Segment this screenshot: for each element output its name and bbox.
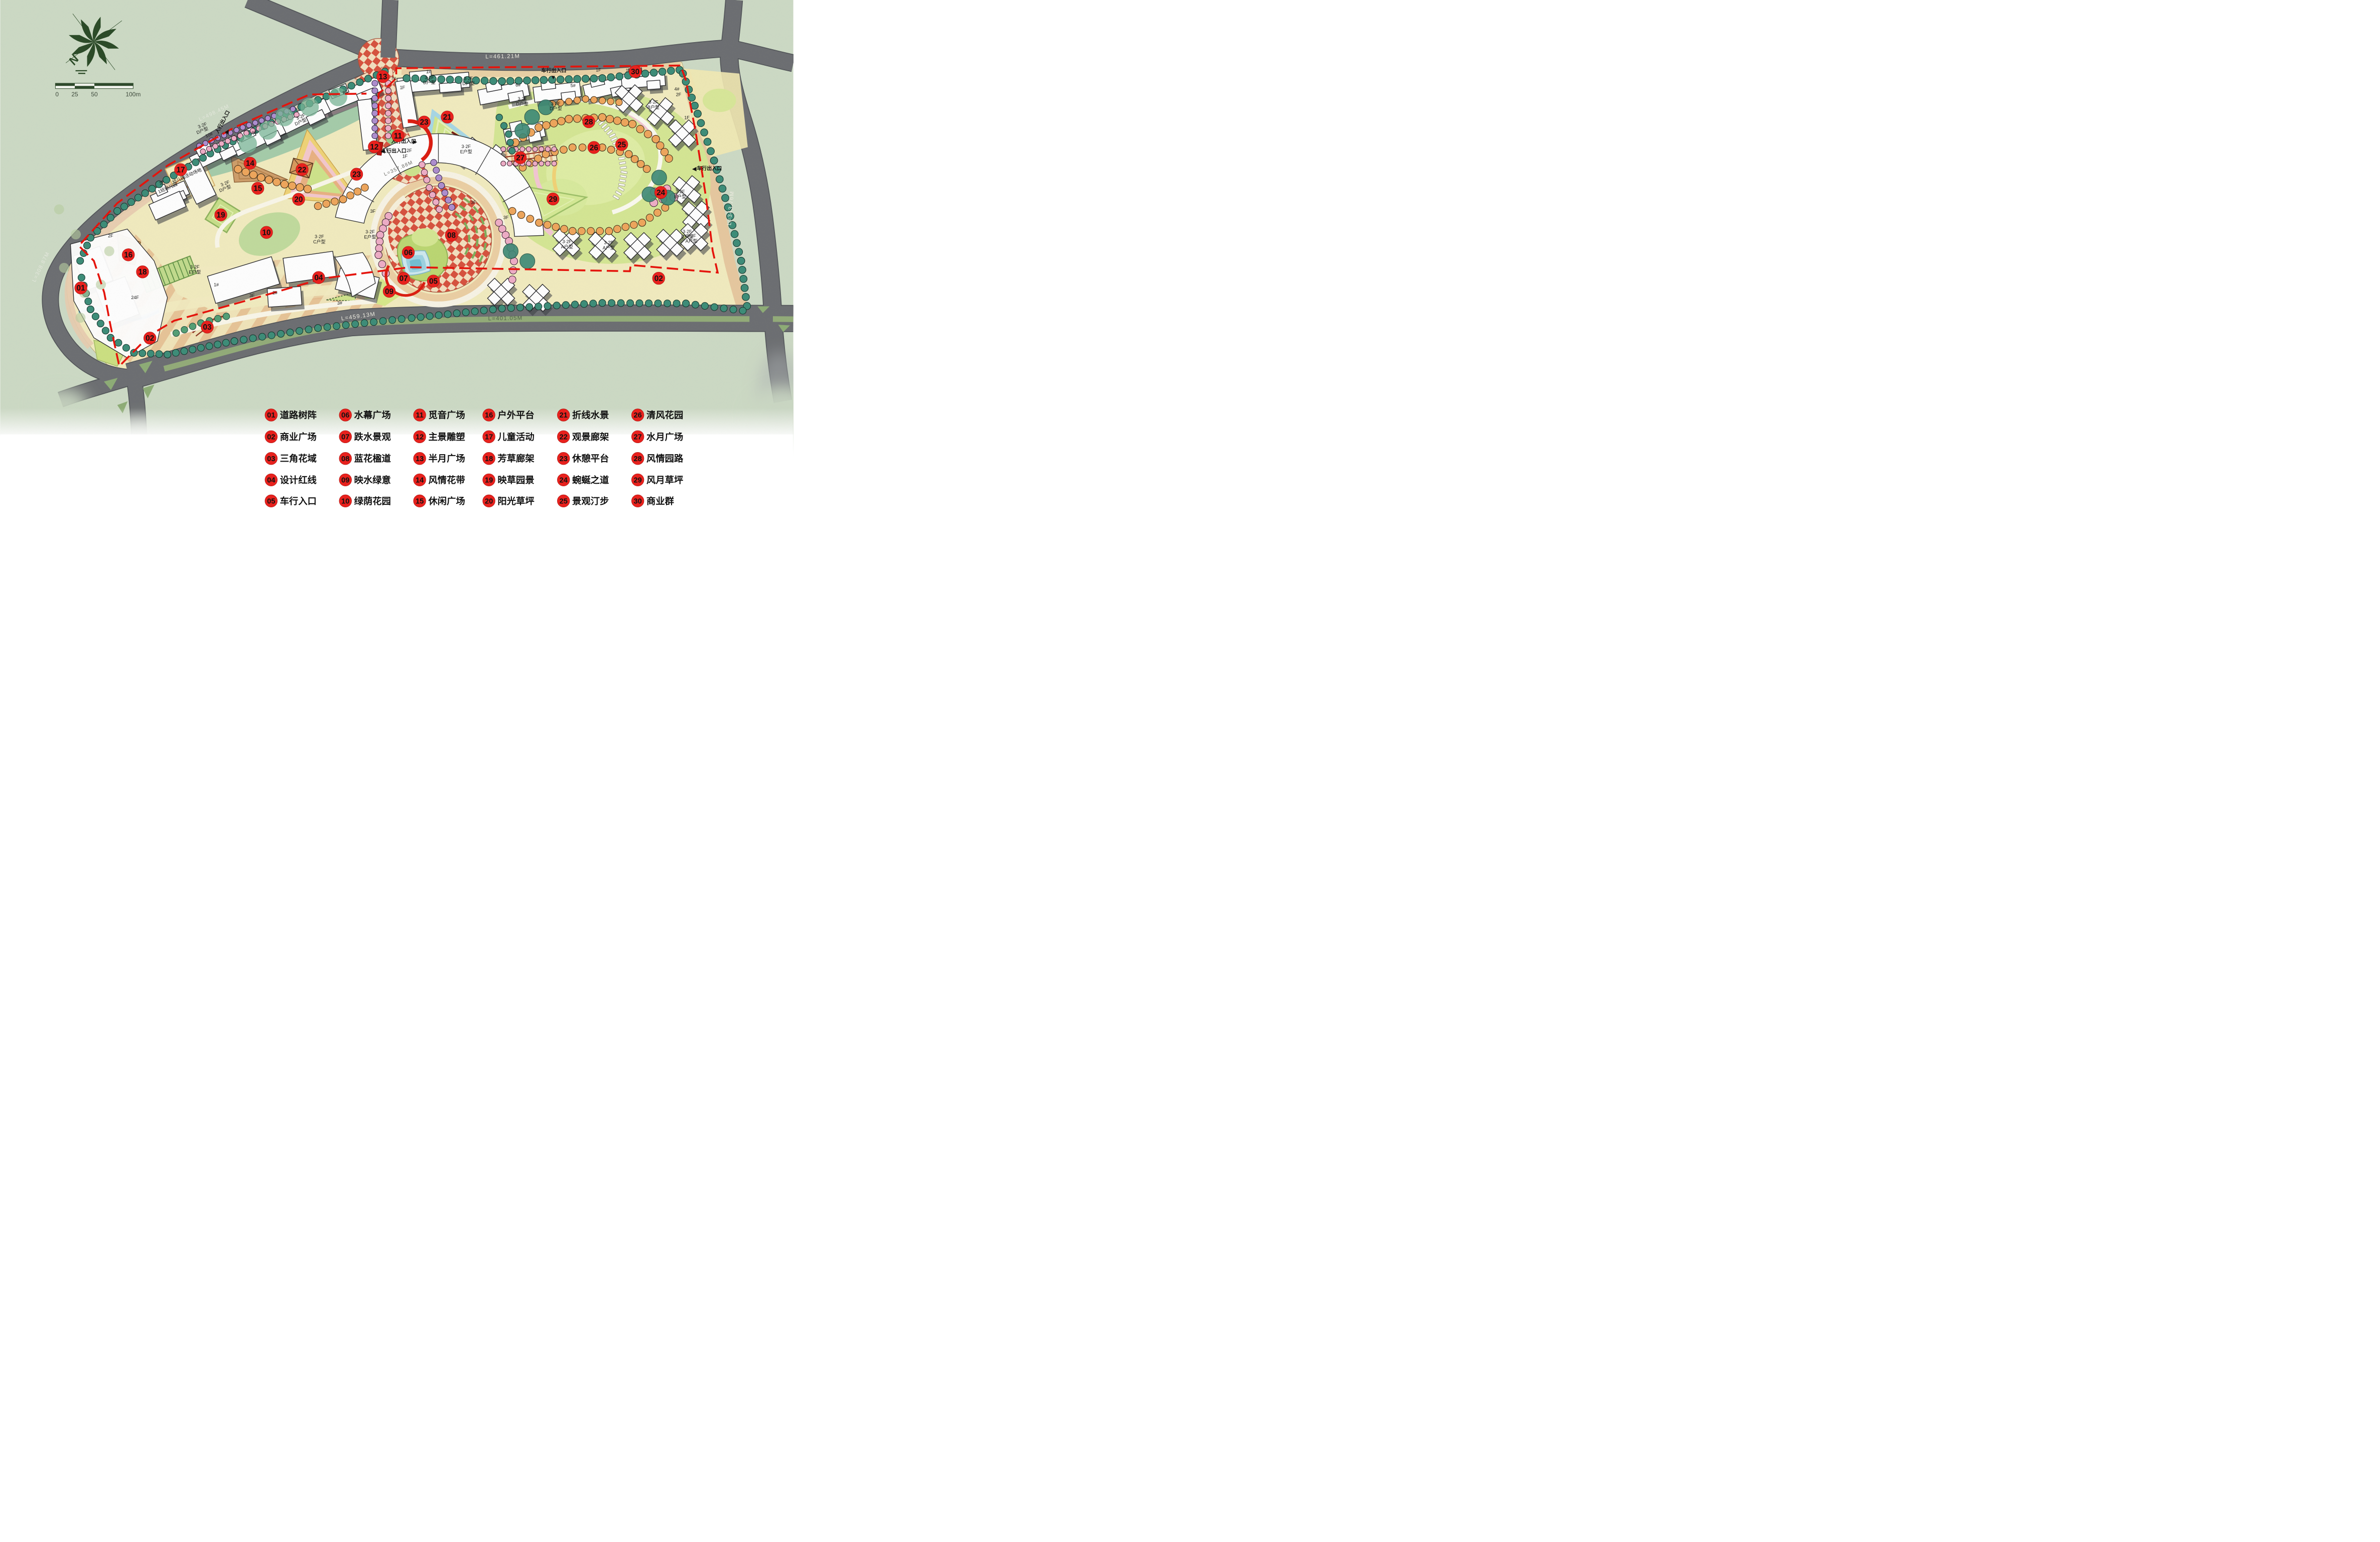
- feature-marker-19: 19: [215, 209, 227, 221]
- legend-item-label: 风情园路: [646, 453, 684, 464]
- building-label: 3·2F: [687, 233, 696, 238]
- legend-item-26: 26清风花园: [631, 409, 683, 422]
- paper-grain: [0, 0, 793, 436]
- legend-item-label: 折线水景: [572, 409, 609, 420]
- legend-item-02: 02商业广场: [265, 431, 317, 443]
- legend-item-09: 09映水绿意: [339, 474, 391, 486]
- feature-marker-22: 22: [296, 164, 309, 176]
- legend-item-number: 26: [634, 411, 642, 419]
- legend-item-17: 17儿童活动: [483, 431, 535, 443]
- feature-marker-26: 26: [588, 142, 600, 154]
- feature-marker-15: 15: [251, 182, 264, 195]
- legend-item-label: 儿童活动: [497, 432, 534, 442]
- legend-item-label: 阳光草坪: [497, 496, 534, 506]
- feature-marker-number: 25: [617, 141, 626, 149]
- legend-item-label: 观景廊架: [572, 432, 609, 442]
- feature-marker-16: 16: [122, 249, 135, 261]
- building-label: 1F: [426, 69, 432, 74]
- building-label: E户型: [189, 269, 201, 274]
- scale-tick-0: 0: [55, 91, 59, 98]
- legend-item-16: 16户外平台: [483, 409, 535, 422]
- legend-item-label: 跌水景观: [354, 432, 391, 442]
- building-label: 3·2F: [604, 240, 613, 245]
- building-label: 3·2F: [649, 100, 658, 105]
- legend-item-14: 14风情花带: [414, 474, 465, 486]
- feature-marker-number: 30: [631, 68, 639, 76]
- building-label: C户型: [313, 239, 325, 244]
- feature-marker-30: 30: [629, 65, 641, 78]
- entrance-arrow-icon: ▼: [551, 75, 556, 81]
- building-label: E户型: [460, 149, 472, 155]
- legend-item-28: 28风情园路: [631, 452, 684, 465]
- legend-item-12: 12主景雕塑: [414, 431, 465, 443]
- legend-item-label: 户外平台: [497, 409, 534, 420]
- legend-item-05: 05车行入口: [265, 495, 317, 507]
- legend-item-20: 20阳光草坪: [483, 495, 535, 507]
- legend-item-06: 06水幕广场: [339, 409, 391, 422]
- feature-marker-21: 21: [441, 111, 454, 123]
- legend-item-15: 15休闲广场: [414, 495, 465, 507]
- feature-marker-03: 03: [201, 321, 214, 333]
- feature-marker-number: 03: [203, 323, 211, 332]
- entrance-arrow-icon: ◀: [692, 166, 697, 172]
- legend-item-27: 27水月广场: [631, 431, 683, 443]
- building-label: 2#: [273, 290, 278, 295]
- feature-marker-number: 23: [420, 118, 429, 127]
- feature-marker-06: 06: [402, 246, 415, 259]
- legend-item-number: 12: [416, 434, 424, 442]
- legend-item-number: 03: [267, 455, 275, 463]
- legend-item-24: 24蜿蜒之道: [557, 474, 609, 486]
- building-label: B户型: [647, 104, 659, 110]
- feature-marker-number: 23: [352, 171, 361, 179]
- legend-item-label: 清风花园: [646, 409, 683, 420]
- legend-item-07: 07跌水景观: [339, 431, 391, 443]
- legend-item-10: 10绿荫花园: [339, 495, 391, 507]
- legend-item-number: 23: [560, 455, 568, 463]
- building-label: 2F: [108, 233, 113, 238]
- feature-marker-number: 09: [385, 288, 393, 296]
- legend-item-22: 22观景廊架: [557, 431, 609, 443]
- building-label: A户型: [561, 244, 573, 249]
- building-label: 3·2F: [518, 96, 527, 101]
- legend-item-03: 03三角花域: [265, 452, 317, 465]
- building-label: 3·2F: [315, 234, 324, 239]
- building-label: 1F: [596, 67, 601, 72]
- legend-item-number: 01: [267, 411, 275, 419]
- legend-item-label: 三角花域: [280, 453, 317, 464]
- feature-marker-05: 05: [427, 275, 440, 288]
- feature-marker-07: 07: [398, 272, 410, 285]
- legend-item-number: 15: [416, 497, 424, 505]
- feature-marker-number: 29: [549, 195, 557, 204]
- legend-item-number: 14: [416, 476, 424, 484]
- building-label: 3·2F: [551, 101, 561, 106]
- legend-item-23: 23休憩平台: [557, 452, 609, 465]
- legend-item-label: 映草园景: [497, 475, 534, 485]
- legend-item-number: 17: [485, 434, 493, 442]
- building-label: 3·2F: [365, 229, 375, 234]
- feature-marker-17: 17: [175, 164, 187, 176]
- legend-item-number: 08: [341, 455, 349, 463]
- feature-marker-27: 27: [514, 152, 526, 164]
- building-label: 3F: [370, 209, 376, 214]
- feature-marker-number: 10: [262, 229, 271, 237]
- feature-marker-number: 19: [216, 211, 225, 220]
- feature-marker-09: 09: [383, 285, 395, 298]
- legend-item-label: 休闲广场: [428, 496, 465, 506]
- building-label: 5#: [571, 83, 576, 88]
- scale-tick-50: 50: [91, 91, 98, 98]
- legend-item-number: 18: [485, 455, 493, 463]
- feature-marker-25: 25: [615, 138, 628, 151]
- legend-item-08: 08蓝花楹道: [339, 452, 391, 465]
- building-label: 7#: [391, 76, 396, 81]
- road-length-label: L=461.21M: [485, 53, 520, 60]
- masterplan-svg: N 0 25 50 100m L=461.21ML=498.45ML=308.8…: [0, 0, 794, 514]
- feature-marker-number: 11: [394, 132, 403, 141]
- legend-item-number: 27: [634, 434, 642, 442]
- legend-item-label: 商业群: [646, 496, 674, 506]
- feature-marker-number: 07: [400, 274, 408, 283]
- feature-marker-number: 21: [443, 113, 452, 122]
- building-label: 3·2F: [190, 264, 200, 269]
- feature-marker-08: 08: [445, 229, 458, 242]
- building-label: 2F: [676, 92, 682, 97]
- legend-item-label: 蜿蜒之道: [572, 475, 609, 485]
- legend-item-number: 09: [341, 476, 349, 484]
- feature-marker-11: 11: [392, 129, 405, 142]
- building-label: 3·2F: [425, 75, 434, 80]
- legend-item-number: 11: [416, 411, 424, 419]
- building-label: 4#: [675, 87, 680, 92]
- feature-marker-number: 12: [370, 143, 378, 152]
- building-label: E户型: [364, 234, 376, 240]
- legend-item-29: 29风月草坪: [631, 474, 683, 486]
- legend-item-number: 05: [267, 497, 275, 505]
- building-label: 3·2F: [462, 144, 471, 149]
- feature-marker-24: 24: [654, 186, 667, 199]
- legend-item-number: 06: [341, 411, 349, 419]
- legend-item-25: 25景观汀步: [557, 495, 609, 507]
- building-label: D户型: [462, 81, 474, 86]
- building-label: 1F: [403, 154, 408, 159]
- building-label: 6#: [515, 83, 520, 88]
- building-label: 3#: [337, 301, 342, 306]
- legend-item-label: 水月广场: [646, 432, 683, 442]
- legend-item-label: 风情花带: [428, 475, 465, 485]
- legend-item-number: 07: [341, 434, 349, 442]
- legend-item-30: 30商业群: [631, 495, 674, 507]
- legend-item-number: 13: [416, 455, 424, 463]
- feature-marker-number: 17: [176, 166, 185, 175]
- building-label: D户型: [423, 80, 435, 85]
- entrance-label: 车行出入口: [541, 67, 566, 74]
- legend-item-label: 芳草廊架: [497, 453, 535, 464]
- road-length-label: L=401.05M: [488, 315, 522, 322]
- entrance-label: 人行出入口: [381, 148, 407, 154]
- scale-tick-100: 100m: [125, 91, 141, 98]
- feature-marker-number: 02: [654, 274, 663, 283]
- legend-item-label: 休憩平台: [572, 453, 609, 464]
- building-label: 1#: [214, 282, 219, 287]
- scale-tick-25: 25: [71, 91, 78, 98]
- legend-item-label: 绿荫花园: [354, 496, 391, 506]
- building-label: 3·2F: [562, 239, 572, 244]
- legend-item-label: 觅音广场: [428, 409, 465, 420]
- feature-marker-number: 01: [77, 284, 86, 293]
- legend-item-number: 10: [341, 497, 349, 505]
- entrance-label: 车行出入口: [697, 165, 722, 172]
- building-label: 3·2F: [676, 189, 685, 194]
- legend-item-label: 主景雕塑: [428, 432, 465, 442]
- legend-item-04: 04设计红线: [265, 474, 317, 486]
- building-label: B户型: [674, 194, 686, 199]
- legend-item-label: 车行入口: [280, 496, 317, 506]
- feature-marker-number: 05: [429, 277, 438, 286]
- feature-marker-14: 14: [244, 157, 256, 170]
- legend-item-label: 景观汀步: [572, 496, 609, 506]
- legend-item-number: 25: [560, 497, 568, 505]
- legend-item-label: 水幕广场: [354, 409, 391, 420]
- feature-marker-13: 13: [377, 70, 389, 83]
- building-label: A户型: [603, 245, 615, 250]
- feature-marker-number: 22: [298, 166, 306, 174]
- building-label: 3·2F: [464, 76, 473, 81]
- legend-item-11: 11觅音广场: [414, 409, 465, 422]
- feature-marker-number: 13: [378, 73, 387, 81]
- feature-marker-10: 10: [260, 226, 273, 239]
- legend-item-number: 30: [634, 497, 642, 505]
- building-label: D户型: [516, 101, 528, 106]
- legend-item-19: 19映草园景: [483, 474, 535, 486]
- entrance-arrow-icon: ◀: [380, 149, 385, 155]
- legend-item-number: 16: [485, 411, 493, 419]
- feature-marker-number: 24: [656, 189, 666, 197]
- feature-marker-number: 14: [246, 160, 255, 168]
- legend-item-label: 商业广场: [280, 432, 317, 442]
- feature-marker-number: 27: [516, 154, 524, 163]
- feature-marker-18: 18: [137, 265, 149, 278]
- entrance-arrow-icon: ▶: [413, 139, 417, 145]
- feature-marker-23: 23: [350, 168, 363, 181]
- legend-item-number: 28: [634, 455, 642, 463]
- feature-marker-29: 29: [547, 193, 559, 205]
- feature-marker-number: 15: [253, 185, 262, 193]
- building-label: 1F: [684, 115, 690, 120]
- legend-item-18: 18芳草廊架: [483, 452, 535, 465]
- building-label: 24F: [131, 295, 139, 300]
- feature-marker-01: 01: [75, 282, 87, 294]
- legend-item-number: 24: [560, 476, 568, 484]
- building-label: 2F: [407, 148, 412, 153]
- building-label: 3F: [503, 215, 509, 220]
- legend-item-label: 设计红线: [280, 475, 317, 485]
- feature-marker-number: 02: [146, 334, 154, 343]
- legend-item-label: 风月草坪: [646, 475, 683, 485]
- feature-marker-number: 04: [314, 274, 323, 283]
- building-label: A户型: [686, 238, 698, 244]
- legend-item-21: 21折线水景: [557, 409, 609, 422]
- feature-marker-number: 20: [294, 196, 303, 204]
- legend-item-label: 半月广场: [428, 453, 465, 464]
- building-label: 3F: [249, 293, 255, 298]
- feature-marker-02: 02: [144, 332, 156, 344]
- feature-marker-number: 26: [590, 144, 598, 152]
- feature-marker-number: 18: [138, 268, 147, 276]
- masterplan-page: N 0 25 50 100m L=461.21ML=498.45ML=308.8…: [0, 0, 794, 514]
- feature-marker-23: 23: [418, 116, 431, 128]
- feature-marker-number: 08: [447, 231, 456, 240]
- legend-item-number: 21: [560, 411, 568, 419]
- feature-marker-20: 20: [293, 193, 305, 206]
- feature-marker-number: 28: [585, 118, 594, 126]
- legend-item-label: 蓝花楹道: [354, 453, 391, 464]
- building-label: 3F: [471, 200, 476, 205]
- legend-band: [0, 435, 793, 514]
- legend-item-number: 22: [560, 434, 568, 442]
- legend-item-number: 29: [634, 476, 642, 484]
- legend-item-01: 01道路树阵: [265, 409, 317, 422]
- legend-item-number: 20: [485, 497, 493, 505]
- feature-marker-number: 16: [124, 251, 133, 259]
- legend-item-13: 13半月广场: [414, 452, 465, 465]
- legend-item-label: 映水绿意: [354, 475, 391, 485]
- feature-marker-12: 12: [368, 141, 381, 153]
- building-label: D户型: [550, 106, 562, 111]
- legend-item-number: 02: [267, 434, 275, 442]
- feature-marker-28: 28: [583, 115, 595, 128]
- legend-item-number: 19: [485, 476, 493, 484]
- legend-item-label: 道路树阵: [280, 409, 317, 420]
- feature-marker-number: 06: [404, 249, 413, 257]
- legend-item-number: 04: [267, 476, 276, 484]
- building-label: 1F: [400, 85, 406, 90]
- feature-marker-04: 04: [313, 271, 325, 284]
- feature-marker-02: 02: [652, 272, 665, 285]
